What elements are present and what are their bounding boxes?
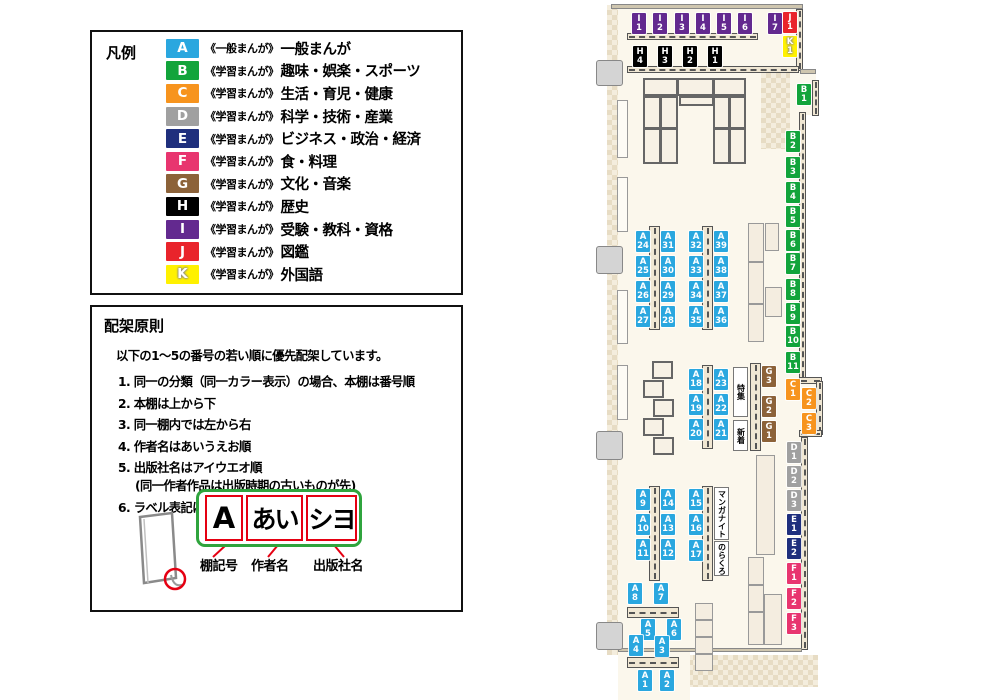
- shelf-label-A28: A 28: [661, 306, 675, 327]
- shelf-label-J1: J 1: [783, 12, 797, 33]
- wall-fixture: [617, 100, 628, 158]
- shelf-label-A26: A 26: [636, 281, 650, 302]
- shelf-label-A5: A 5: [641, 619, 655, 640]
- shelf-label-B1: B 1: [797, 84, 811, 105]
- map-sign-4: のらくろ: [714, 541, 729, 576]
- shelf-label-K1: K 1: [783, 36, 797, 57]
- shelf-label-I4: I 4: [696, 13, 710, 34]
- table-square: [695, 603, 713, 620]
- shelf-label-A16: A 16: [689, 514, 703, 535]
- wall-right-top: [796, 9, 803, 71]
- wall-fixture: [617, 177, 628, 232]
- shelf-label-A19: A 19: [689, 394, 703, 415]
- shelf-label-B4: B 4: [786, 182, 800, 203]
- shelf-unit: [748, 262, 764, 304]
- shelf-strip-a1-4: [627, 657, 679, 668]
- shelf-label-G1: G 1: [762, 421, 776, 442]
- shelf-unit: [748, 557, 764, 585]
- shelf-label-A14: A 14: [661, 489, 675, 510]
- table: [729, 96, 746, 129]
- table: [643, 128, 661, 164]
- door: [596, 60, 623, 86]
- table-zigzag: [653, 399, 674, 417]
- shelf-label-A12: A 12: [661, 539, 675, 560]
- shelf-label-A11: A 11: [636, 539, 650, 560]
- table: [660, 128, 678, 164]
- shelf-label-A29: A 29: [661, 281, 675, 302]
- shelf-label-A31: A 31: [661, 231, 675, 252]
- shelf-label-D2: D 2: [787, 466, 801, 487]
- shelf-label-B6: B 6: [786, 230, 800, 251]
- shelf-label-A10: A 10: [636, 514, 650, 535]
- wall-alcove-right: [816, 381, 823, 435]
- table: [713, 96, 730, 129]
- shelf-label-A27: A 27: [636, 306, 650, 327]
- shelf-label-A25: A 25: [636, 256, 650, 277]
- shelf-label-A21: A 21: [714, 419, 728, 440]
- shelf-label-A13: A 13: [661, 514, 675, 535]
- shelf-label-A9: A 9: [636, 489, 650, 510]
- shelf-strip-h-row: [627, 66, 799, 73]
- shelf-label-A4: A 4: [629, 635, 643, 656]
- shelf-label-B10: B 10: [786, 326, 800, 347]
- shelf-label-A20: A 20: [689, 419, 703, 440]
- map-sign-1: 特集: [733, 367, 748, 417]
- shelf-label-B11: B 11: [786, 352, 800, 373]
- shelf-label-A6: A 6: [667, 619, 681, 640]
- shelf-label-A1: A 1: [638, 670, 652, 691]
- shelf-strip-i-row: [627, 33, 758, 40]
- shelf-label-B9: B 9: [786, 303, 800, 324]
- table-zigzag: [643, 418, 664, 436]
- table: [713, 128, 730, 164]
- shelf-label-A24: A 24: [636, 231, 650, 252]
- door: [596, 431, 623, 460]
- shelf-strip-a24-31: [649, 226, 660, 330]
- shelf-label-A33: A 33: [689, 256, 703, 277]
- shelf-label-F1: F 1: [787, 563, 801, 584]
- shelf-label-A7: A 7: [654, 583, 668, 604]
- shelf-label-G3: G 3: [762, 366, 776, 387]
- table-zigzag: [643, 380, 664, 398]
- shelf-label-H1: H 1: [708, 46, 722, 67]
- shelf-strip-a7-8: [627, 607, 679, 618]
- shelf-label-A18: A 18: [689, 369, 703, 390]
- shelf-label-C2: C 2: [802, 388, 816, 409]
- table: [660, 96, 678, 129]
- table: [643, 96, 661, 129]
- table: [713, 78, 746, 96]
- shelf-label-A15: A 15: [689, 489, 703, 510]
- shelf-unit: [764, 594, 782, 645]
- shelf-unit: [765, 223, 779, 251]
- shelf-label-F3: F 3: [787, 613, 801, 634]
- shelf-unit-tall: [756, 455, 775, 555]
- shelf-label-A8: A 8: [628, 583, 642, 604]
- shelf-label-H4: H 4: [633, 46, 647, 67]
- shelf-label-H3: H 3: [658, 46, 672, 67]
- door: [596, 622, 623, 650]
- shelf-unit: [748, 223, 764, 262]
- shelf-label-E1: E 1: [787, 514, 801, 535]
- map-sign-3: マンガナイト: [714, 487, 729, 540]
- shelf-label-B2: B 2: [786, 131, 800, 152]
- shelf-label-I7: I 7: [768, 13, 782, 34]
- shelf-label-A32: A 32: [689, 231, 703, 252]
- shelf-label-A38: A 38: [714, 256, 728, 277]
- shelf-strip-g: [750, 363, 761, 451]
- wall-fixture: [617, 365, 628, 420]
- shelf-label-A23: A 23: [714, 369, 728, 390]
- shelf-label-H2: H 2: [683, 46, 697, 67]
- table-square: [695, 620, 713, 637]
- door: [596, 246, 623, 274]
- wall-right-mid: [799, 112, 806, 379]
- table-square: [695, 654, 713, 671]
- shelf-label-E2: E 2: [787, 538, 801, 559]
- shelf-unit: [748, 612, 764, 645]
- shelf-label-I3: I 3: [675, 13, 689, 34]
- shelf-label-G2: G 2: [762, 396, 776, 417]
- shelf-label-A37: A 37: [714, 281, 728, 302]
- table: [729, 128, 746, 164]
- floor-map: I 1I 2I 3I 4I 5I 6I 7J 1K 1H 4H 3H 2H 1B…: [0, 0, 1000, 700]
- shelf-unit: [748, 304, 764, 342]
- shelf-strip-a32-39: [702, 226, 713, 330]
- shelf-label-I2: I 2: [653, 13, 667, 34]
- shelf-strip-a15-17: [702, 486, 713, 581]
- shelf-label-B5: B 5: [786, 206, 800, 227]
- table: [677, 78, 714, 96]
- shelf-label-C3: C 3: [802, 413, 816, 434]
- shelf-label-A3: A 3: [655, 636, 669, 657]
- shelf-label-I5: I 5: [717, 13, 731, 34]
- shelf-label-B3: B 3: [786, 157, 800, 178]
- shelf-label-A36: A 36: [714, 306, 728, 327]
- shelf-label-I1: I 1: [632, 13, 646, 34]
- shelf-label-D1: D 1: [787, 442, 801, 463]
- shelf-label-B7: B 7: [786, 253, 800, 274]
- shelf-label-C1: C 1: [786, 379, 800, 400]
- wall-right-low: [801, 437, 808, 650]
- shelf-unit: [765, 287, 782, 317]
- shelf-label-A30: A 30: [661, 256, 675, 277]
- table: [679, 96, 714, 106]
- shelf-unit: [748, 585, 764, 612]
- shelf-label-D3: D 3: [787, 490, 801, 511]
- shelf-label-A34: A 34: [689, 281, 703, 302]
- shelf-label-A39: A 39: [714, 231, 728, 252]
- shelf-strip-b1: [812, 80, 819, 116]
- wall-top: [611, 4, 803, 9]
- shelf-label-I6: I 6: [738, 13, 752, 34]
- shelf-strip-a9-14: [649, 486, 660, 581]
- map-sign-2: 新着: [733, 420, 748, 451]
- wall-jog-b1: [800, 69, 816, 74]
- shelf-label-F2: F 2: [787, 588, 801, 609]
- shelf-label-B8: B 8: [786, 279, 800, 300]
- table-zigzag: [652, 361, 673, 379]
- shelf-label-A35: A 35: [689, 306, 703, 327]
- table-zigzag: [653, 437, 674, 455]
- shelf-label-A22: A 22: [714, 394, 728, 415]
- table-square: [695, 637, 713, 654]
- shelf-strip-a18-23: [702, 365, 713, 449]
- table: [643, 78, 678, 96]
- wall-fixture: [617, 290, 628, 344]
- shelf-label-A2: A 2: [660, 670, 674, 691]
- shelf-label-A17: A 17: [689, 540, 703, 561]
